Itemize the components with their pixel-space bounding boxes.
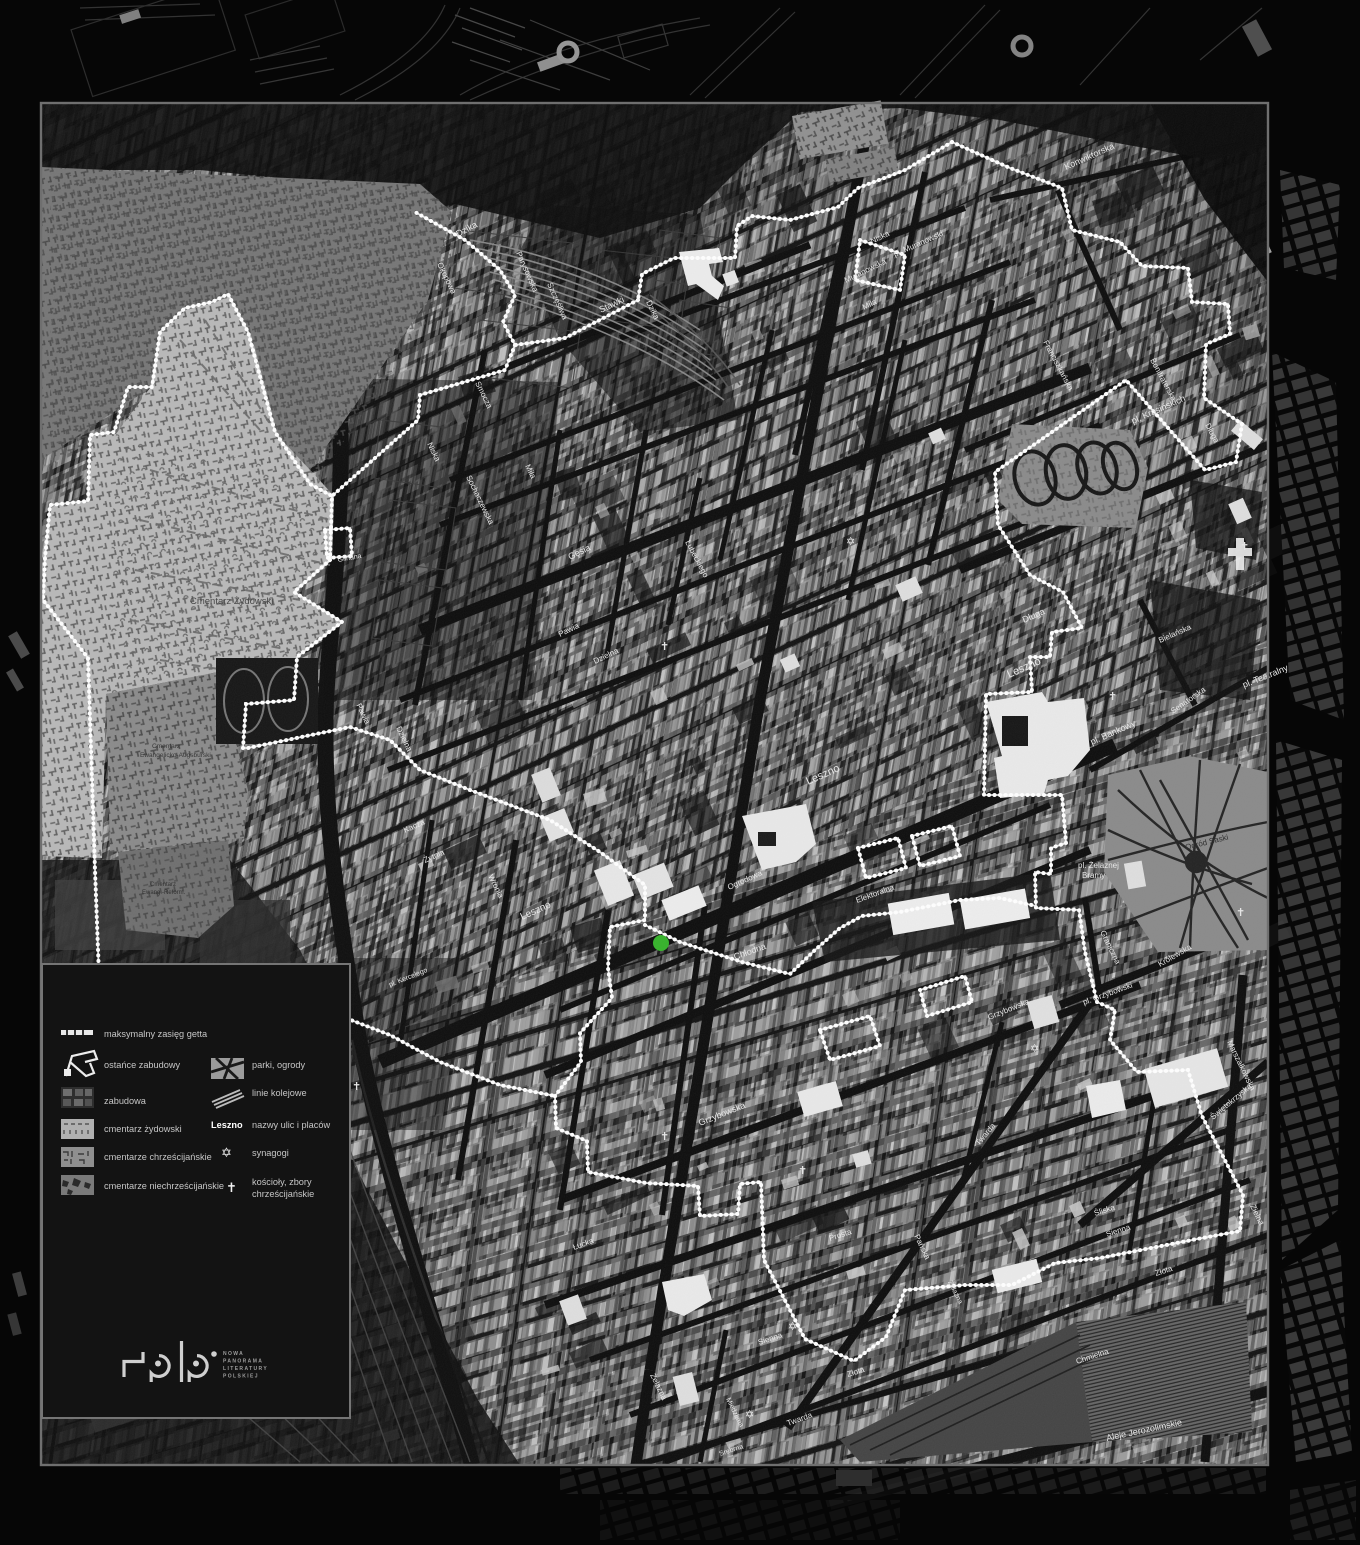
svg-text:parki, ogrody: parki, ogrody (252, 1060, 306, 1070)
svg-text:✡: ✡ (221, 1145, 232, 1160)
svg-text:synagogi: synagogi (252, 1148, 289, 1158)
svg-text:linie kolejowe: linie kolejowe (252, 1088, 307, 1098)
svg-text:nazwy ulic i placów: nazwy ulic i placów (252, 1120, 330, 1130)
svg-text:cmentarze chrześcijańskie: cmentarze chrześcijańskie (104, 1152, 212, 1162)
svg-text:cmentarz żydowski: cmentarz żydowski (104, 1124, 182, 1134)
svg-text:✝: ✝ (226, 1180, 237, 1195)
svg-text:maksymalny zasięg getta: maksymalny zasięg getta (104, 1029, 208, 1039)
svg-text:cmentarze niechrześcijańskie: cmentarze niechrześcijańskie (104, 1181, 224, 1191)
svg-text:NOWA: NOWA (223, 1351, 244, 1357)
svg-text:POLSKIEJ: POLSKIEJ (223, 1374, 259, 1380)
svg-text:LITERATURY: LITERATURY (223, 1366, 268, 1372)
svg-text:chrześcijańskie: chrześcijańskie (252, 1189, 314, 1199)
svg-text:PANORAMA: PANORAMA (223, 1359, 263, 1365)
svg-text:ostańce zabudowy: ostańce zabudowy (104, 1060, 181, 1070)
svg-text:Leszno: Leszno (211, 1120, 243, 1130)
svg-text:zabudowa: zabudowa (104, 1096, 147, 1106)
svg-text:kościoły, zbory: kościoły, zbory (252, 1177, 312, 1187)
